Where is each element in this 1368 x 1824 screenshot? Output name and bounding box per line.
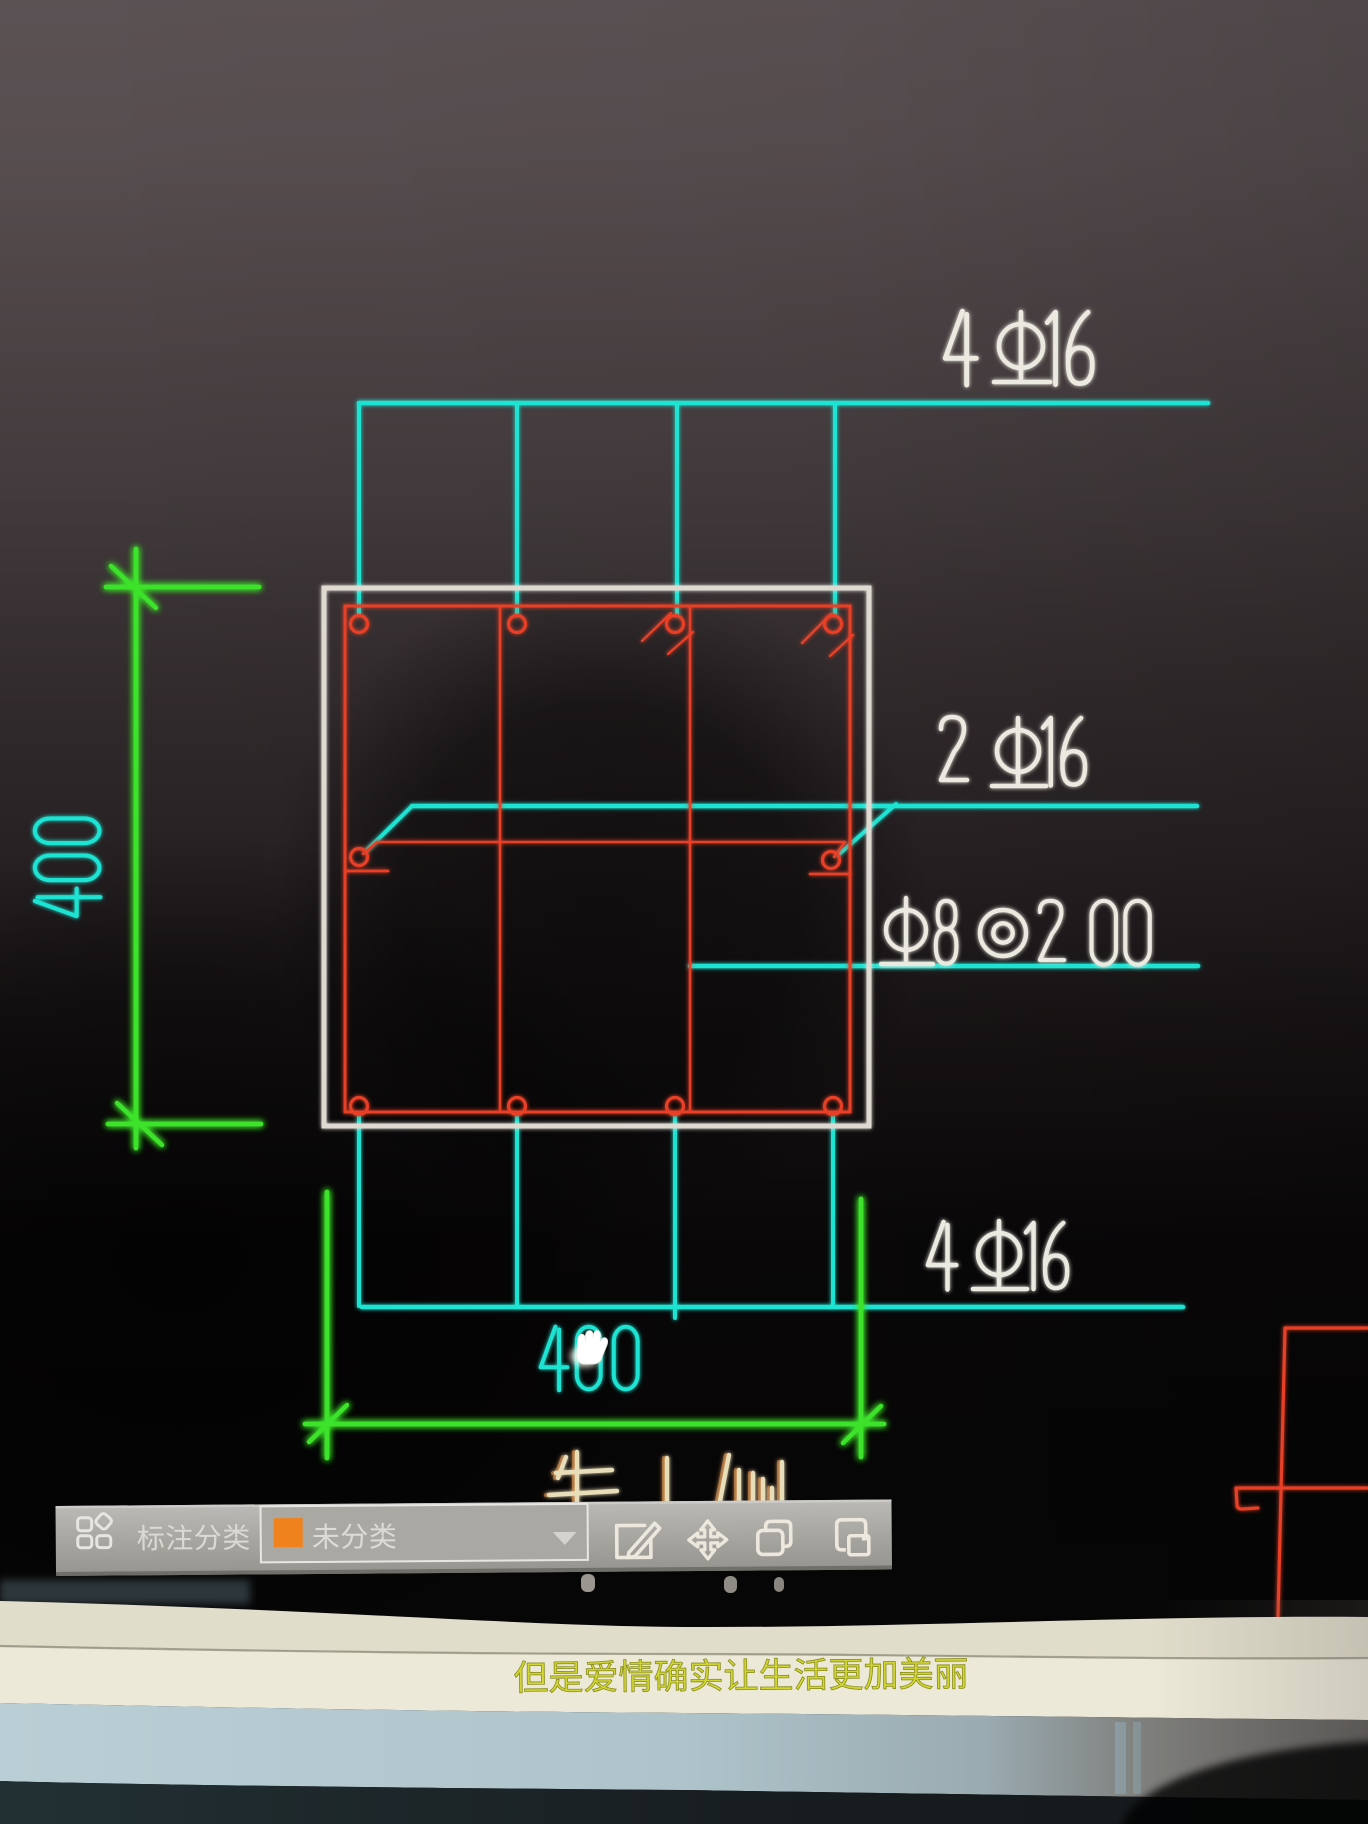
svg-text:未分类: 未分类 — [312, 1521, 398, 1553]
svg-text:标注分类: 标注分类 — [137, 1522, 251, 1554]
svg-text:但是爱情确实让生活更加美丽: 但是爱情确实让生活更加美丽 — [513, 1655, 968, 1698]
